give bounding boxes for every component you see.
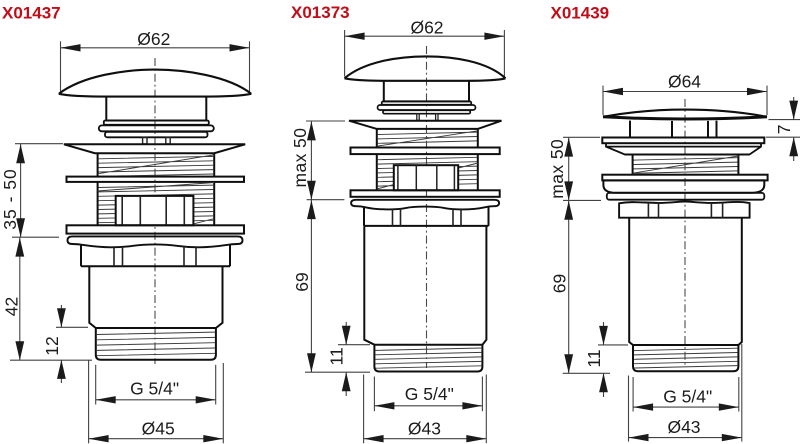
svg-text:Ø64: Ø64 [668, 71, 701, 91]
svg-text:G 5/4": G 5/4" [663, 386, 712, 406]
svg-text:Ø62: Ø62 [137, 29, 170, 49]
svg-text:11: 11 [326, 347, 346, 365]
svg-text:69: 69 [292, 272, 312, 291]
svg-text:G 5/4": G 5/4" [405, 384, 454, 404]
svg-text:12: 12 [42, 336, 62, 355]
svg-text:Ø62: Ø62 [410, 18, 443, 38]
svg-text:35 - 50: 35 - 50 [0, 169, 20, 230]
svg-text:Ø45: Ø45 [142, 418, 175, 438]
svg-text:Ø43: Ø43 [408, 419, 441, 439]
svg-text:69: 69 [549, 274, 569, 293]
svg-text:max 50: max 50 [547, 139, 567, 199]
svg-text:X01437: X01437 [2, 4, 61, 23]
svg-text:11: 11 [584, 349, 604, 367]
svg-text:G 5/4": G 5/4" [130, 378, 179, 398]
svg-text:X01373: X01373 [291, 3, 350, 22]
svg-text:42: 42 [1, 297, 21, 316]
svg-text:X01439: X01439 [551, 4, 610, 23]
svg-text:max 50: max 50 [290, 128, 310, 188]
svg-text:7: 7 [774, 125, 794, 135]
svg-text:Ø43: Ø43 [667, 417, 700, 437]
